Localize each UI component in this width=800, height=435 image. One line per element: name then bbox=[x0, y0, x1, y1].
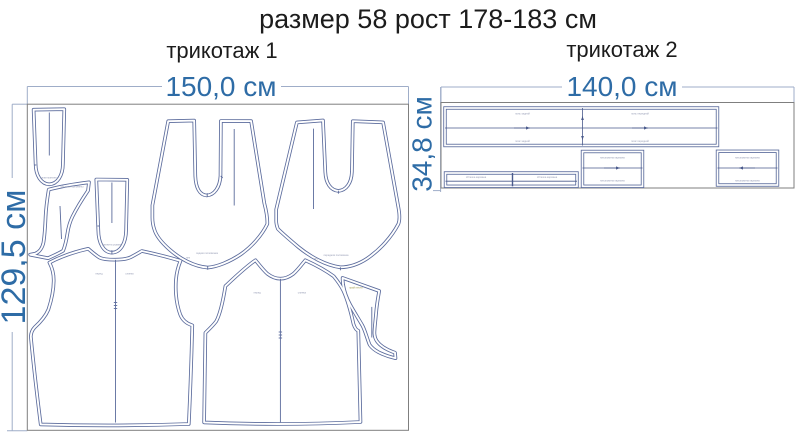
svg-text:задняя половинка: задняя половинка bbox=[196, 252, 218, 255]
svg-text:мешковина кармана: мешковина кармана bbox=[600, 157, 625, 160]
svg-text:мешковина кармана: мешковина кармана bbox=[600, 180, 625, 183]
svg-text:передняя половинка: передняя половинка bbox=[324, 254, 349, 257]
svg-text:размер 58 рост 178-183 см: размер 58 рост 178-183 см bbox=[259, 4, 597, 34]
svg-text:обтачка кармана: обтачка кармана bbox=[466, 175, 487, 179]
svg-text:пояс задний: пояс задний bbox=[515, 139, 530, 143]
svg-text:трикотаж 2: трикотаж 2 bbox=[566, 37, 677, 62]
svg-text:обтачка горловины: обтачка горловины bbox=[61, 185, 84, 189]
svg-text:спинка: спинка bbox=[125, 273, 134, 276]
svg-text:перед: перед bbox=[254, 291, 262, 294]
svg-text:пояс передний: пояс передний bbox=[631, 112, 649, 116]
svg-text:мешковина кармана: мешковина кармана bbox=[735, 157, 760, 160]
svg-text:34,8 см: 34,8 см bbox=[407, 96, 438, 192]
svg-text:узкая манжета: узкая манжета bbox=[40, 177, 58, 180]
svg-text:перед: перед bbox=[95, 273, 103, 276]
svg-text:обтачка кармана: обтачка кармана bbox=[537, 175, 558, 179]
svg-text:140,0 см: 140,0 см bbox=[566, 71, 677, 102]
svg-text:спинка: спинка bbox=[298, 291, 307, 294]
svg-text:трикотаж 1: трикотаж 1 bbox=[166, 38, 277, 63]
svg-text:манжета рукава: манжета рукава bbox=[102, 243, 122, 246]
svg-text:пояс передний: пояс передний bbox=[631, 139, 649, 143]
svg-text:150,0 см: 150,0 см bbox=[165, 71, 276, 102]
svg-text:мешковина кармана: мешковина кармана bbox=[735, 180, 760, 183]
svg-text:пояс задний: пояс задний bbox=[515, 112, 530, 116]
svg-text:край петли: край петли bbox=[349, 285, 363, 289]
